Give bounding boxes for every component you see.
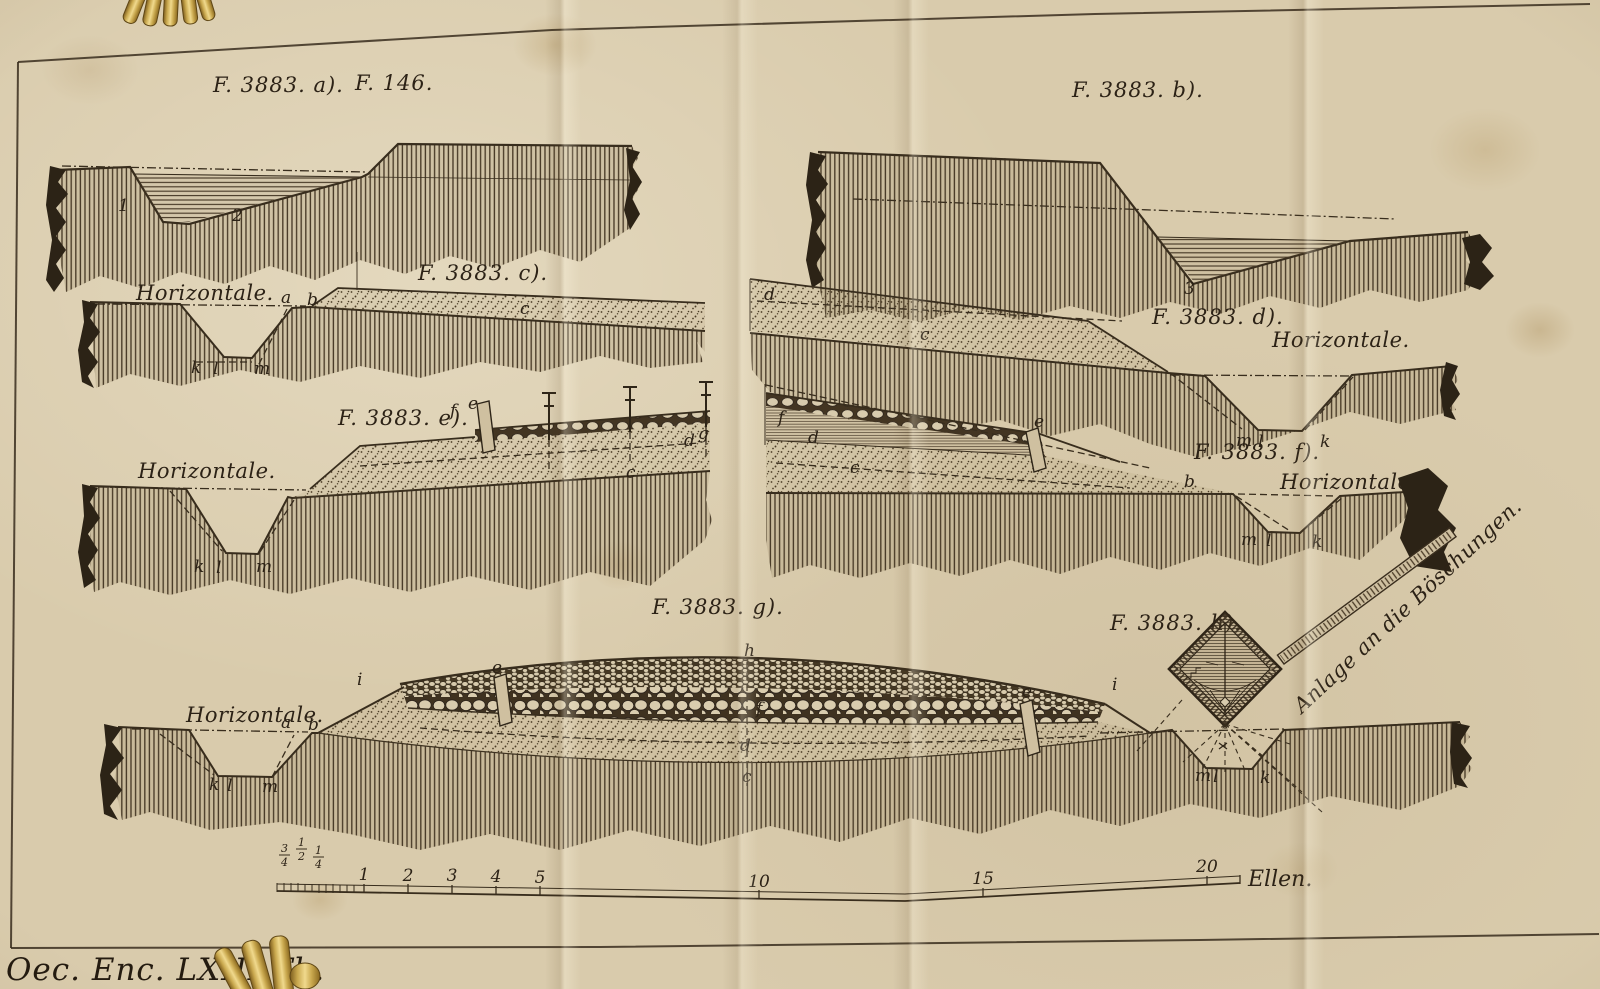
point-label-b: b bbox=[308, 715, 319, 735]
point-label-k: k bbox=[1312, 532, 1322, 552]
point-label-c: c bbox=[520, 299, 530, 319]
scale-number-20: 20 bbox=[1195, 857, 1218, 877]
scale-fraction-3-4: 3 4 bbox=[279, 842, 290, 869]
figure-b-cross-section: F. 3883. b). 3 bbox=[806, 78, 1494, 322]
point-label-m: m bbox=[1195, 766, 1211, 786]
figure-g-label: F. 3883. g). bbox=[651, 595, 784, 619]
point-label-d: d bbox=[808, 428, 819, 448]
horizontale-label: Horizontale. bbox=[1279, 470, 1418, 494]
torn-right-edge bbox=[1450, 722, 1472, 788]
point-label-c: c bbox=[626, 463, 636, 483]
ground-mass bbox=[54, 144, 640, 292]
point-label-l: l bbox=[227, 776, 232, 796]
horizontal-dashed-line bbox=[1238, 494, 1335, 496]
point-label-1: 1 bbox=[118, 196, 129, 216]
figure-a-label-2: F. 146. bbox=[354, 71, 433, 95]
point-label-a: a bbox=[281, 288, 291, 308]
point-label-l: l bbox=[213, 359, 218, 379]
scale-number-10: 10 bbox=[748, 872, 770, 892]
clasp-prong bbox=[179, 0, 198, 25]
figure-e-label: F. 3883. e). bbox=[337, 406, 469, 430]
point-label-i1: i bbox=[357, 670, 362, 690]
fraction-numerator: 1 bbox=[298, 836, 305, 849]
point-label-e2: e bbox=[1022, 682, 1032, 702]
fraction-numerator: 1 bbox=[315, 844, 322, 857]
figure-a-label: F. 3883. a). bbox=[212, 73, 344, 97]
point-label-m: m bbox=[1241, 530, 1257, 550]
point-label-3: 3 bbox=[1184, 279, 1195, 299]
fraction-denominator: 4 bbox=[314, 858, 322, 871]
point-label-m: m bbox=[256, 557, 272, 577]
figure-c-label: F. 3883. c). bbox=[417, 261, 548, 285]
point-label-m: m bbox=[262, 777, 278, 797]
book-clasp-top bbox=[121, 0, 216, 27]
point-label-c: c bbox=[742, 767, 752, 787]
horizontale-label: Horizontale. bbox=[185, 703, 324, 727]
figure-b-label: F. 3883. b). bbox=[1071, 78, 1204, 102]
scale-number-4: 4 bbox=[490, 867, 502, 887]
clasp-prong bbox=[142, 0, 164, 27]
point-label-e: e bbox=[1034, 412, 1044, 432]
point-label-i2: i bbox=[1112, 675, 1117, 695]
figure-d-label: F. 3883. d). bbox=[1151, 305, 1284, 329]
ground-mass bbox=[814, 152, 1478, 322]
scale-number-1: 1 bbox=[359, 865, 370, 885]
point-label-a: a bbox=[281, 713, 291, 733]
point-label-k: k bbox=[191, 358, 201, 378]
scale-number-3: 3 bbox=[447, 866, 458, 886]
point-label-k: k bbox=[1260, 768, 1270, 788]
scale-unit-label: Ellen. bbox=[1247, 867, 1312, 892]
point-label-l: l bbox=[1266, 531, 1271, 551]
clasp-knob bbox=[290, 963, 320, 989]
horizontale-label: Horizontale. bbox=[135, 281, 274, 305]
point-label-m: m bbox=[254, 359, 270, 379]
point-label-g: g bbox=[698, 424, 709, 444]
scale-number-2: 2 bbox=[402, 866, 414, 886]
point-label-e: e bbox=[468, 394, 478, 414]
clasp-prong bbox=[163, 0, 179, 26]
point-label-d: d bbox=[684, 431, 695, 451]
point-label-h: h bbox=[744, 641, 755, 661]
point-label-c: c bbox=[850, 458, 860, 478]
fraction-denominator: 4 bbox=[280, 856, 288, 869]
point-label-e1: e bbox=[492, 658, 502, 678]
scale-number-5: 5 bbox=[535, 868, 546, 888]
horizontale-label: Horizontale. bbox=[1271, 328, 1410, 352]
figure-f-label: F. 3883. f). bbox=[1193, 440, 1320, 464]
point-label-k: k bbox=[1320, 432, 1330, 452]
figure-g-cross-section: F. 3883. g). Horizontale. a b i i bbox=[100, 595, 1472, 850]
figure-e-cross-section: F. 3883. e). Horizontale. f bbox=[78, 382, 713, 595]
scale-fraction-1-2: 1 2 bbox=[296, 836, 307, 863]
cross-mark bbox=[1219, 743, 1227, 749]
fraction-denominator: 2 bbox=[297, 850, 305, 863]
point-label-b: b bbox=[307, 290, 318, 310]
point-label-l: l bbox=[216, 558, 221, 578]
point-label-d: d bbox=[740, 736, 751, 756]
point-label-b: b bbox=[1184, 472, 1195, 492]
scale-fraction-1-4: 1 4 bbox=[313, 844, 324, 871]
point-label-c: c bbox=[920, 325, 930, 345]
point-label-d: d bbox=[764, 285, 775, 305]
point-label-2: 2 bbox=[231, 206, 243, 226]
point-label-l: l bbox=[1213, 767, 1218, 787]
fraction-numerator: 3 bbox=[281, 842, 288, 855]
engraved-plate-page: F. 3883. a). F. 146. 1 2 F. 3883. b). 3 bbox=[0, 0, 1600, 989]
horizontale-label: Horizontale. bbox=[137, 459, 276, 483]
point-label-k: k bbox=[194, 557, 204, 577]
figure-a-cross-section: F. 3883. a). F. 146. 1 2 bbox=[46, 71, 642, 292]
point-label-k: k bbox=[209, 775, 219, 795]
scale-number-15: 15 bbox=[972, 869, 994, 889]
plate-engraving: F. 3883. a). F. 146. 1 2 F. 3883. b). 3 bbox=[0, 0, 1600, 989]
